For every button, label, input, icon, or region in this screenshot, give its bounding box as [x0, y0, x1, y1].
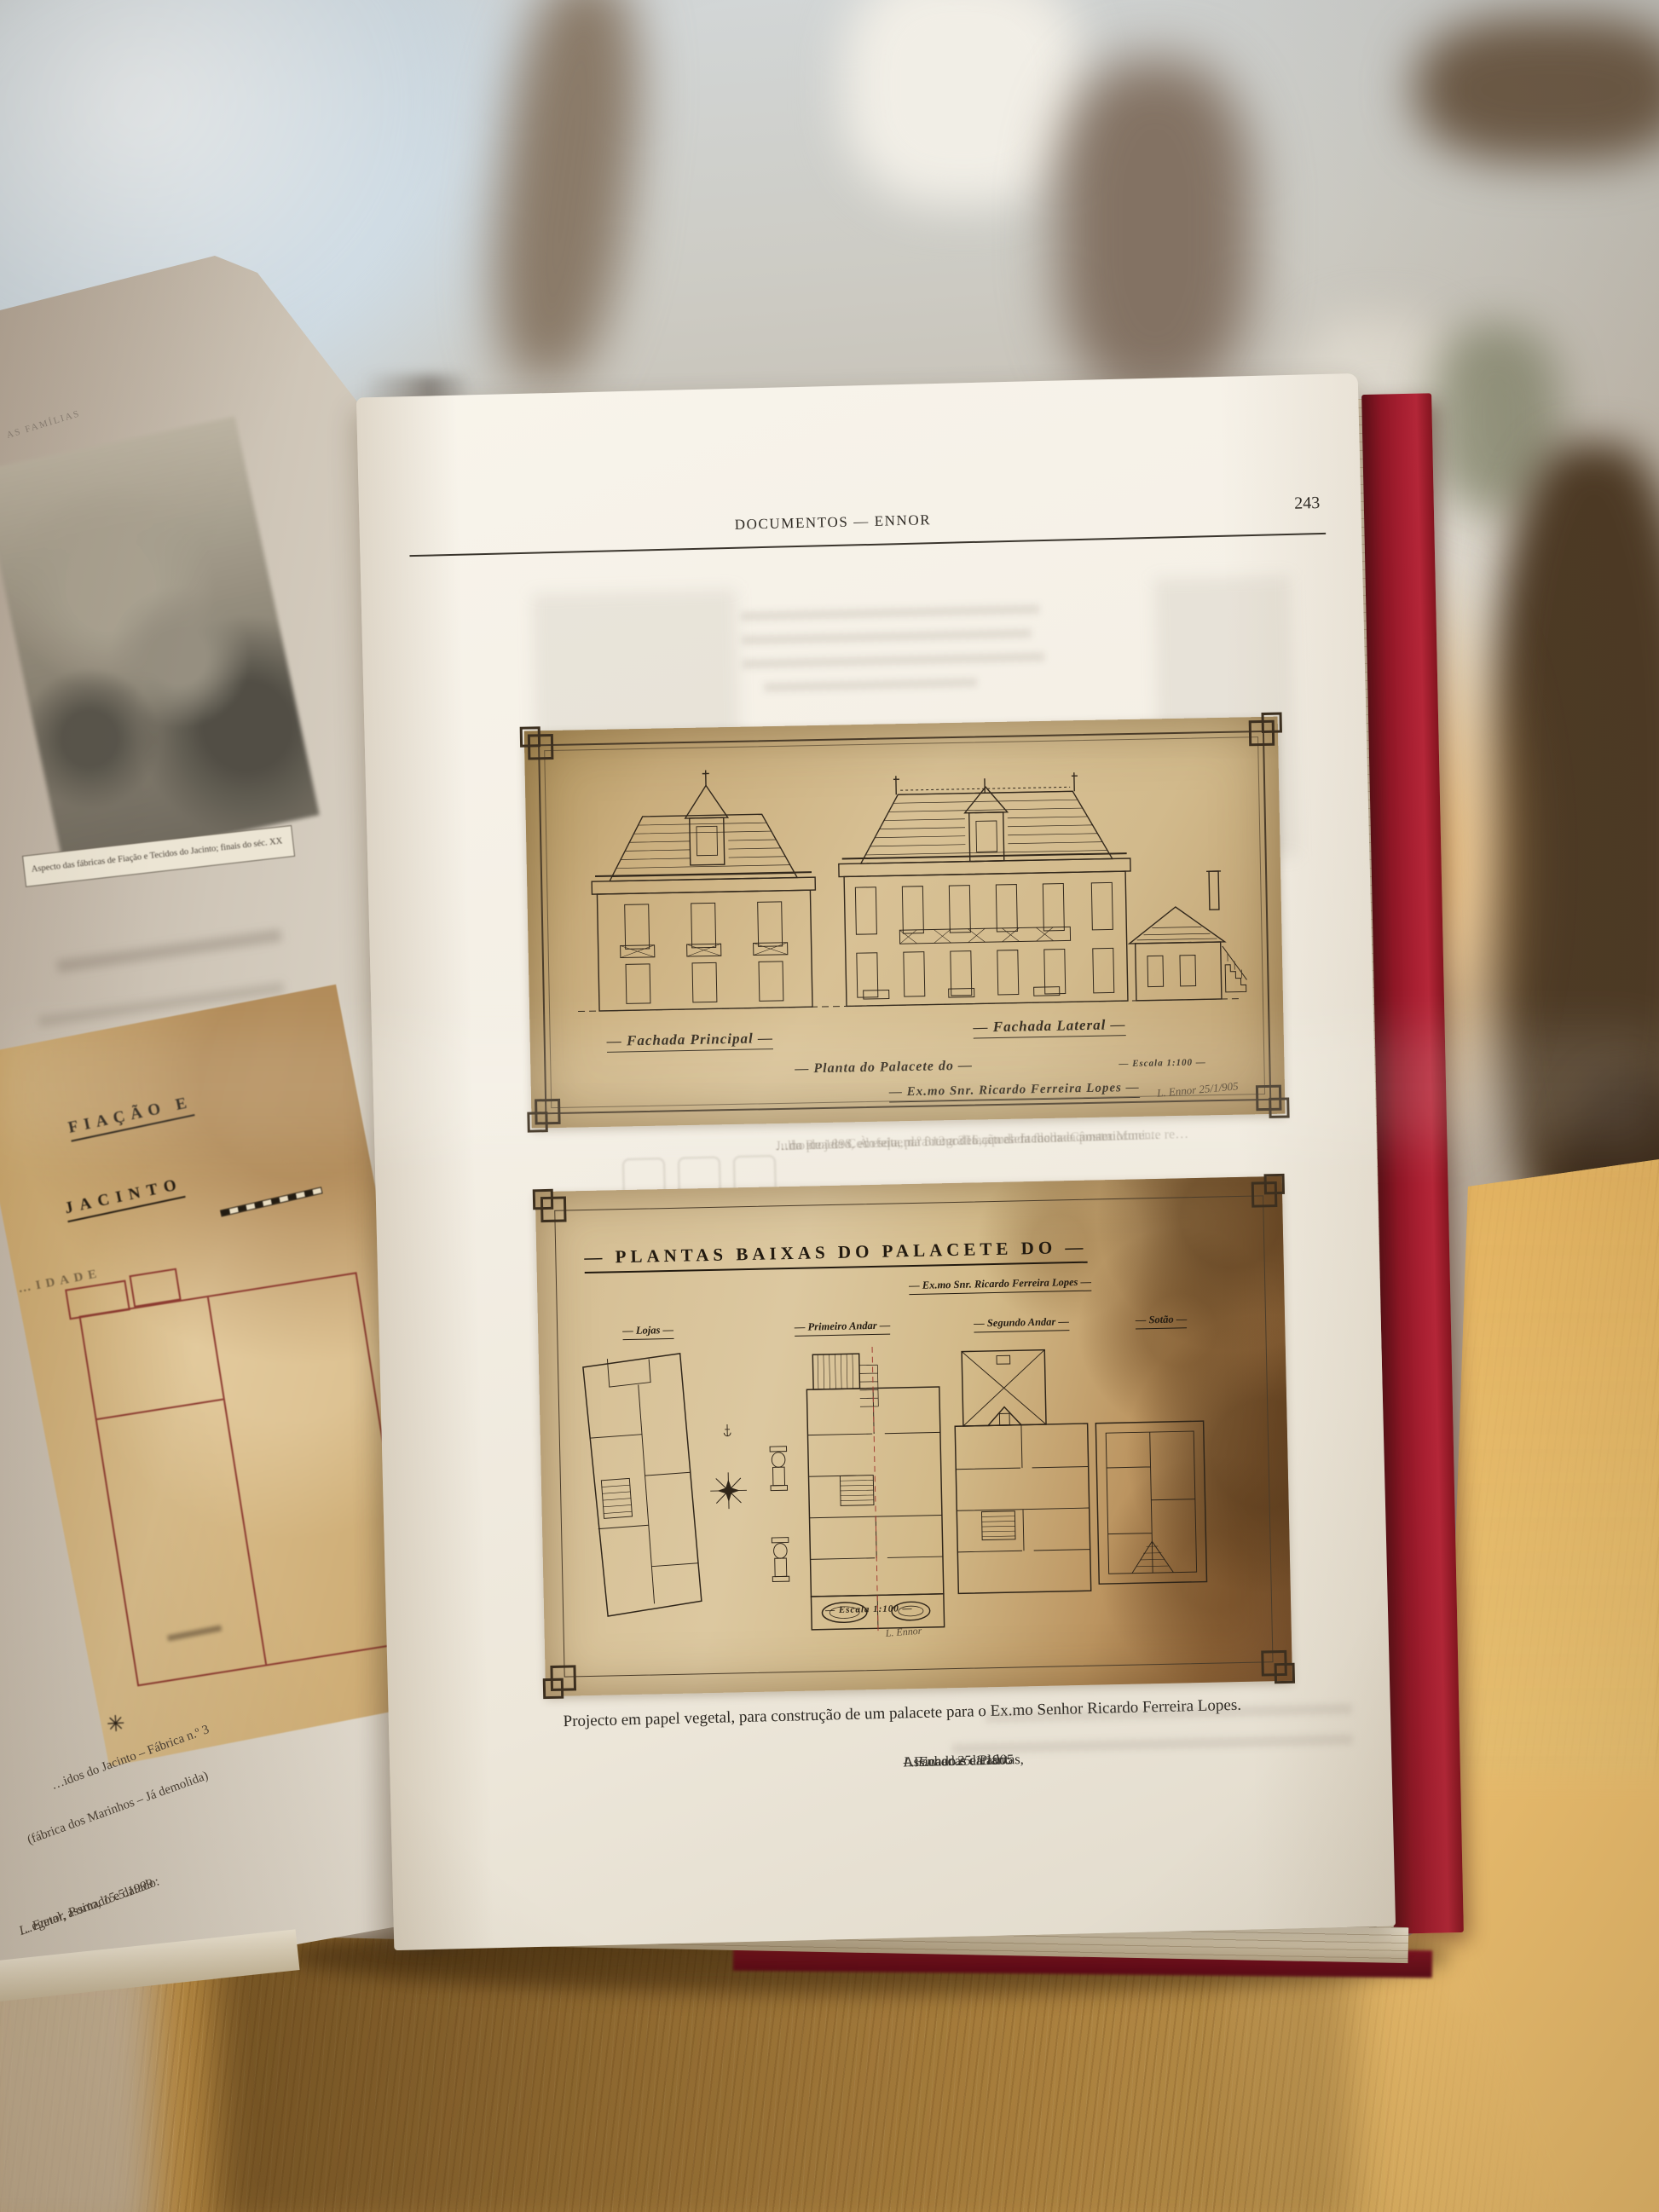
- ceiling-beam: [1415, 17, 1659, 162]
- faint-heading-1: [56, 929, 282, 973]
- floor-plans-line-drawing: [564, 1334, 1266, 1649]
- left-running-header: AS FAMÍLIAS: [5, 408, 82, 441]
- label-sotao: — Sotão —: [1136, 1313, 1188, 1329]
- label-lojas: — Lojas —: [622, 1324, 673, 1340]
- plan-wall: [97, 1399, 223, 1420]
- corner-ornament-icon: [550, 1665, 576, 1691]
- label-segundo-andar: — Segundo Andar —: [974, 1315, 1069, 1332]
- plan-wall: [207, 1297, 267, 1665]
- photo-of-open-book: AS FAMÍLIAS Aspecto das fábricas de Fiaç…: [0, 0, 1659, 2212]
- bright-panel: [844, 0, 1083, 205]
- corner-ornament-icon: [1251, 1181, 1278, 1208]
- dark-beam-2: [1057, 60, 1253, 401]
- baluster-detail-icon: [770, 1447, 789, 1582]
- corner-ornament-icon: [528, 734, 554, 760]
- corner-ornament-icon: [1261, 1650, 1287, 1677]
- left-caption-3-signature: L. Ennor, Porto, 15.5.1999: [17, 1876, 155, 1939]
- scale-bar: [220, 1187, 323, 1216]
- right-book-page: DOCUMENTOS — ENNOR 243: [356, 373, 1396, 1950]
- facades-line-drawing: [558, 741, 1249, 1026]
- compass-rose-icon: [709, 1424, 748, 1510]
- plan-heading-2: JACINTO: [63, 1175, 186, 1222]
- page-number: 243: [1294, 494, 1321, 514]
- corner-ornament-icon: [540, 1196, 567, 1222]
- label-primeiro-andar: — Primeiro Andar —: [795, 1320, 891, 1337]
- plans-scale-note: — Escala 1:100 —: [825, 1603, 913, 1615]
- light-flare: [0, 1031, 1659, 1142]
- aerial-photo: [0, 416, 320, 869]
- compass-star-icon: ✳: [106, 1711, 125, 1737]
- corner-ornament-icon: [1249, 720, 1275, 747]
- floor-plans-figure: — PLANTAS BAIXAS DO PALACETE DO — — Ex.m…: [535, 1176, 1292, 1696]
- architect-signature: L. Ennor: [885, 1625, 922, 1640]
